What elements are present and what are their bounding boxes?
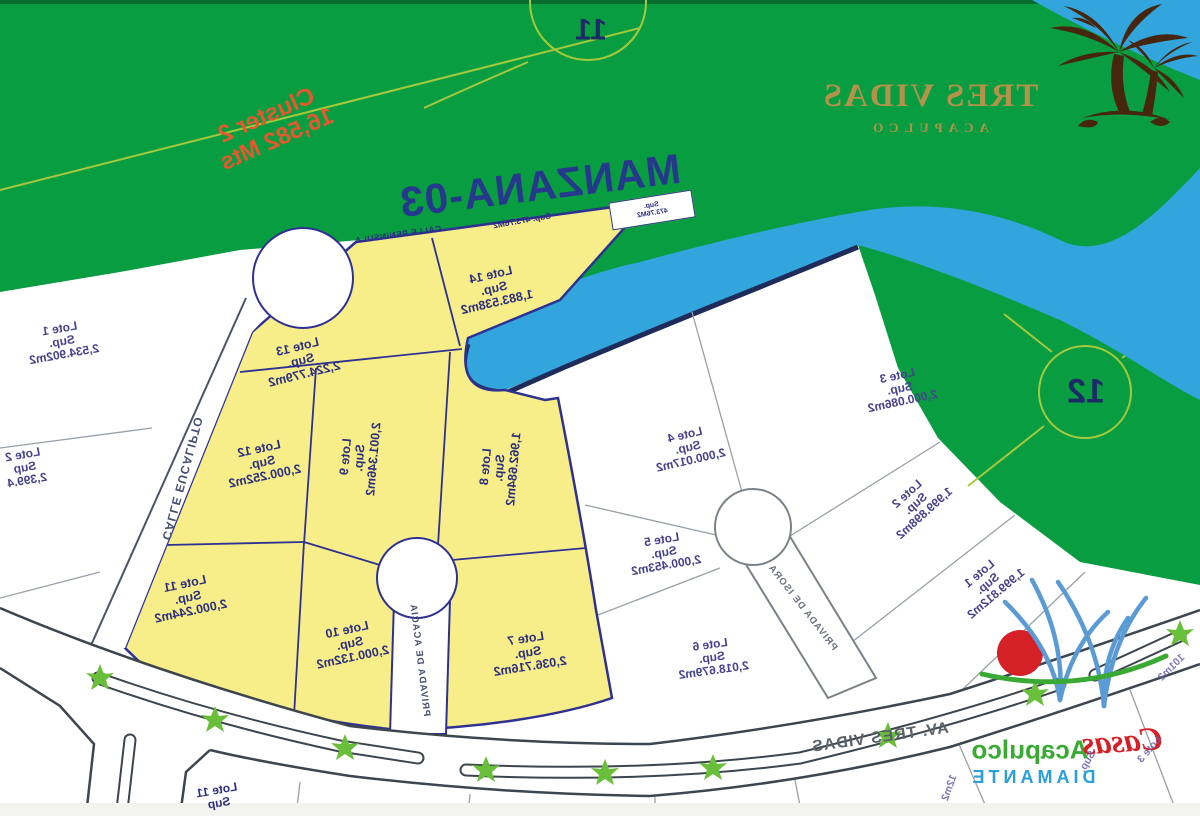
bottom-page-strip xyxy=(0,803,1200,816)
footer-brand-name: Acapulco xyxy=(971,736,1088,765)
resort-subtitle: ACAPULCO xyxy=(867,121,989,135)
isora-culdesac xyxy=(715,489,791,565)
hole-marker-12: 12 xyxy=(1067,373,1105,410)
lot-label-9: Lote 9Sup.2,001.346m2 xyxy=(336,419,384,496)
eucalipto-culdesac xyxy=(253,228,353,328)
lot-label-8: Lote 8Sup.1,962.684m2 xyxy=(476,429,524,506)
top-border-strip xyxy=(0,0,1200,4)
hole-marker-11: 11 xyxy=(575,14,607,47)
lot-label-left2: Lote 2Sup2,399.4 xyxy=(2,445,48,491)
map-graphics xyxy=(0,0,1200,816)
resort-title: TRES VIDAS xyxy=(822,78,1039,114)
footer-brand-sub: DIAMANTE xyxy=(969,768,1096,788)
site-plan-map: TRES VIDAS ACAPULCO Cluster 216,582 Mts … xyxy=(0,0,1200,816)
